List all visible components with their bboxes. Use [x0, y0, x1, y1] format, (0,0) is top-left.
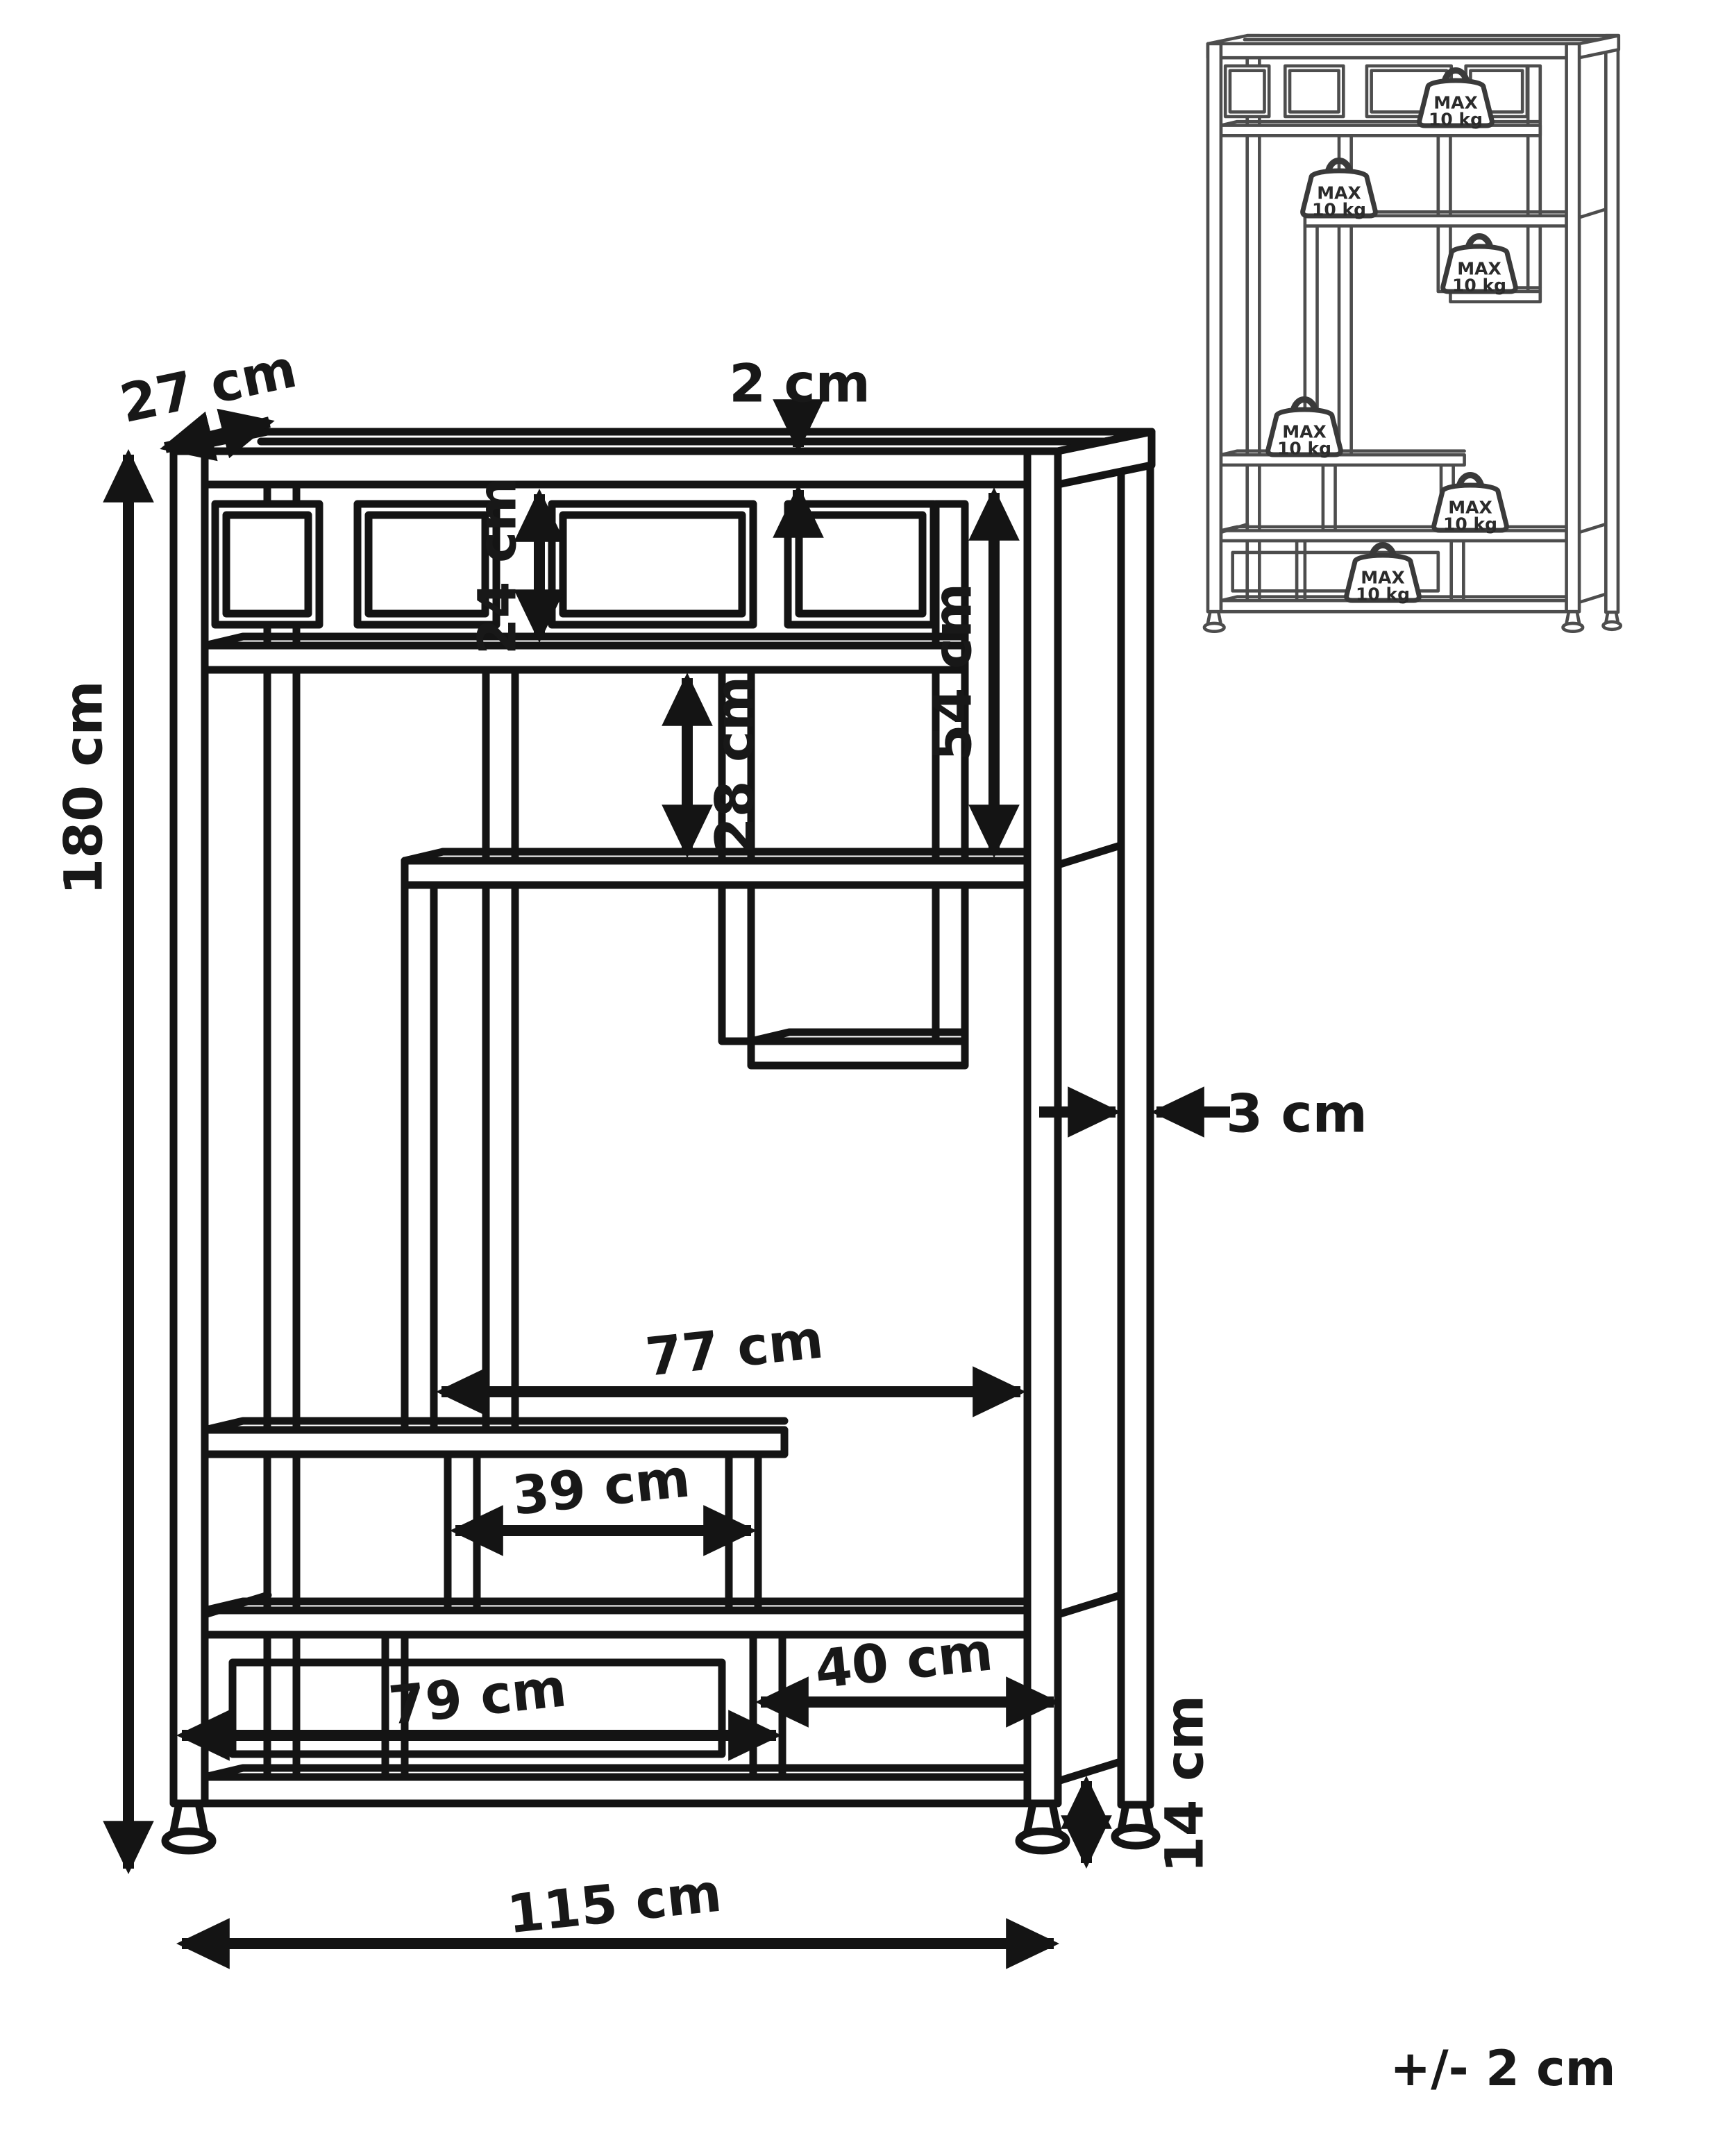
dimension-diagram-page: 27 cm 2 cm 24 cm 28 cm 54 cm 180 cm 3 cm [0, 0, 1725, 2156]
bottom-left-width-dimension-label: 79 cm [386, 1656, 569, 1736]
max-load-badge-line2: 10 kg [1277, 439, 1331, 459]
max-load-inset-drawing: MAX 10 kg MAX 10 kg MAX 10 kg MAX 10 kg … [1204, 35, 1621, 631]
shelving-unit-main-drawing [165, 432, 1156, 1851]
right-opening-height-dimension-label: 54 cm [922, 583, 984, 761]
top-row-height-dimension-label: 24 cm [466, 477, 528, 655]
max-load-badge-line2: 10 kg [1452, 276, 1506, 296]
foot-clearance-dimension-label: 14 cm [1154, 1695, 1215, 1873]
middle-box-height-dimension-label: 28 cm [704, 676, 766, 854]
max-load-badge-line2: 10 kg [1356, 584, 1410, 605]
max-load-badge-line2: 10 kg [1312, 200, 1366, 220]
max-load-badge: MAX 10 kg [1347, 546, 1420, 605]
small-box-width-dimension-label: 39 cm [510, 1447, 693, 1526]
tolerance-note: +/- 2 cm [1390, 2040, 1615, 2097]
top-thickness-dimension-label: 2 cm [729, 353, 870, 414]
max-load-badge: MAX 10 kg [1443, 237, 1516, 296]
max-load-badge-line2: 10 kg [1443, 514, 1497, 534]
total-height-dimension-label: 180 cm [53, 680, 115, 895]
frame-thickness-dimension-label: 3 cm [1226, 1083, 1368, 1145]
total-width-dimension-label: 115 cm [505, 1862, 725, 1946]
max-load-badge-line2: 10 kg [1429, 110, 1483, 130]
middle-opening-width-dimension-label: 77 cm [643, 1308, 826, 1388]
max-load-badge: MAX 10 kg [1268, 400, 1341, 459]
max-load-badge: MAX 10 kg [1303, 161, 1376, 220]
shelving-dimension-diagram: 27 cm 2 cm 24 cm 28 cm 54 cm 180 cm 3 cm [0, 0, 1725, 2156]
depth-dimension-label: 27 cm [115, 337, 301, 435]
